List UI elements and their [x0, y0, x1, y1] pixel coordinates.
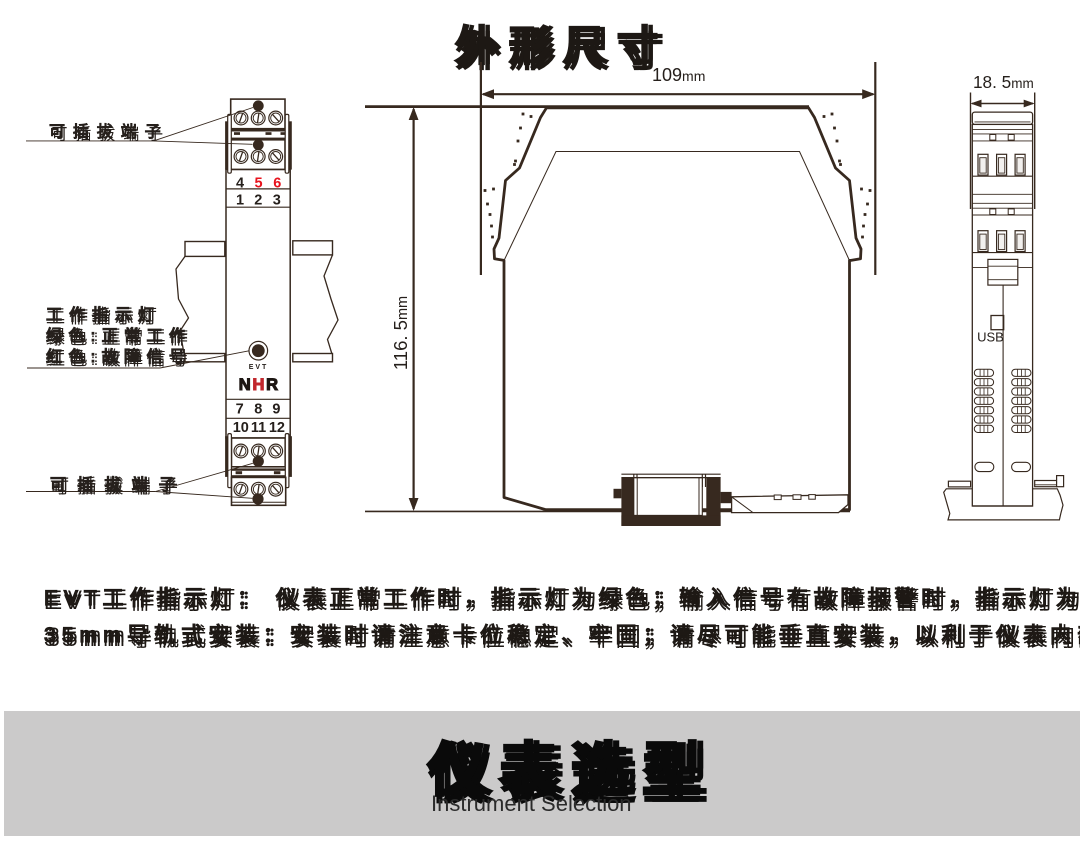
svg-text:8: 8: [254, 402, 262, 418]
svg-text:2: 2: [254, 192, 262, 208]
svg-text:R: R: [266, 376, 278, 394]
svg-text:10: 10: [233, 420, 249, 436]
svg-text:EVT: EVT: [249, 364, 269, 371]
svg-text:1: 1: [236, 192, 244, 208]
svg-text:3: 3: [273, 192, 281, 208]
svg-text:USB: USB: [977, 329, 1004, 344]
svg-text:9: 9: [272, 402, 280, 418]
svg-text:11: 11: [251, 420, 266, 436]
svg-text:7: 7: [236, 402, 244, 418]
svg-text:H: H: [252, 376, 264, 394]
svg-text:N: N: [239, 376, 251, 394]
svg-text:12: 12: [269, 420, 285, 436]
